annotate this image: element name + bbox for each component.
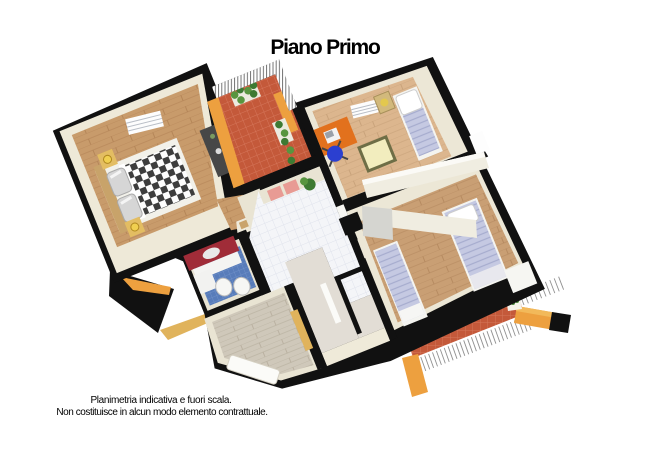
svg-text:Non costituisce in alcun modo: Non costituisce in alcun modo elemento c… <box>56 407 267 418</box>
svg-text:Piano Primo: Piano Primo <box>270 36 380 59</box>
svg-text:Planimetria indicativa e fuori: Planimetria indicativa e fuori scala. <box>90 395 231 406</box>
